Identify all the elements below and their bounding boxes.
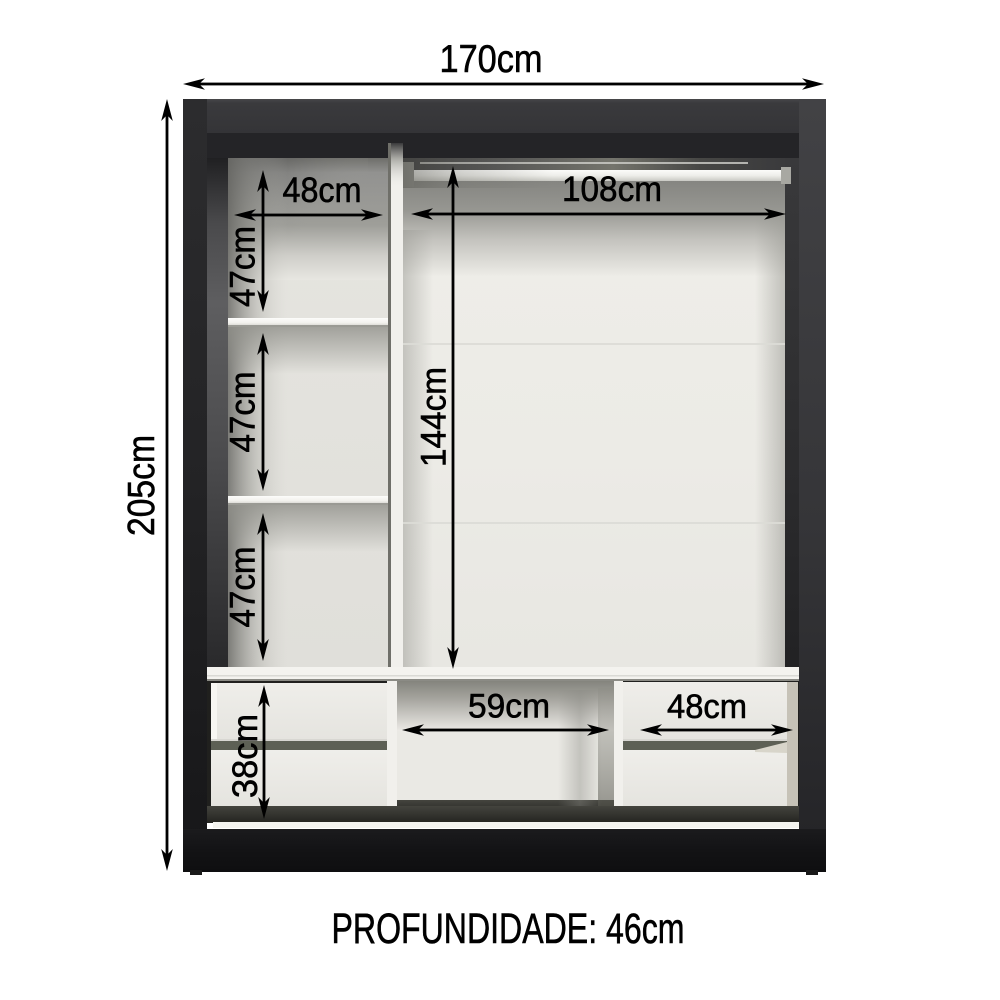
svg-text:47cm: 47cm [224, 372, 263, 453]
svg-text:47cm: 47cm [224, 226, 263, 307]
svg-text:38cm: 38cm [226, 714, 265, 798]
svg-text:170cm: 170cm [440, 38, 543, 81]
svg-text:144cm: 144cm [415, 367, 454, 467]
svg-text:59cm: 59cm [468, 688, 550, 726]
svg-text:47cm: 47cm [224, 547, 263, 628]
svg-text:PROFUNDIDADE: 46cm: PROFUNDIDADE: 46cm [332, 905, 685, 953]
svg-text:205cm: 205cm [121, 435, 163, 536]
svg-text:48cm: 48cm [667, 688, 747, 726]
svg-text:48cm: 48cm [283, 171, 362, 210]
svg-text:108cm: 108cm [562, 170, 662, 209]
